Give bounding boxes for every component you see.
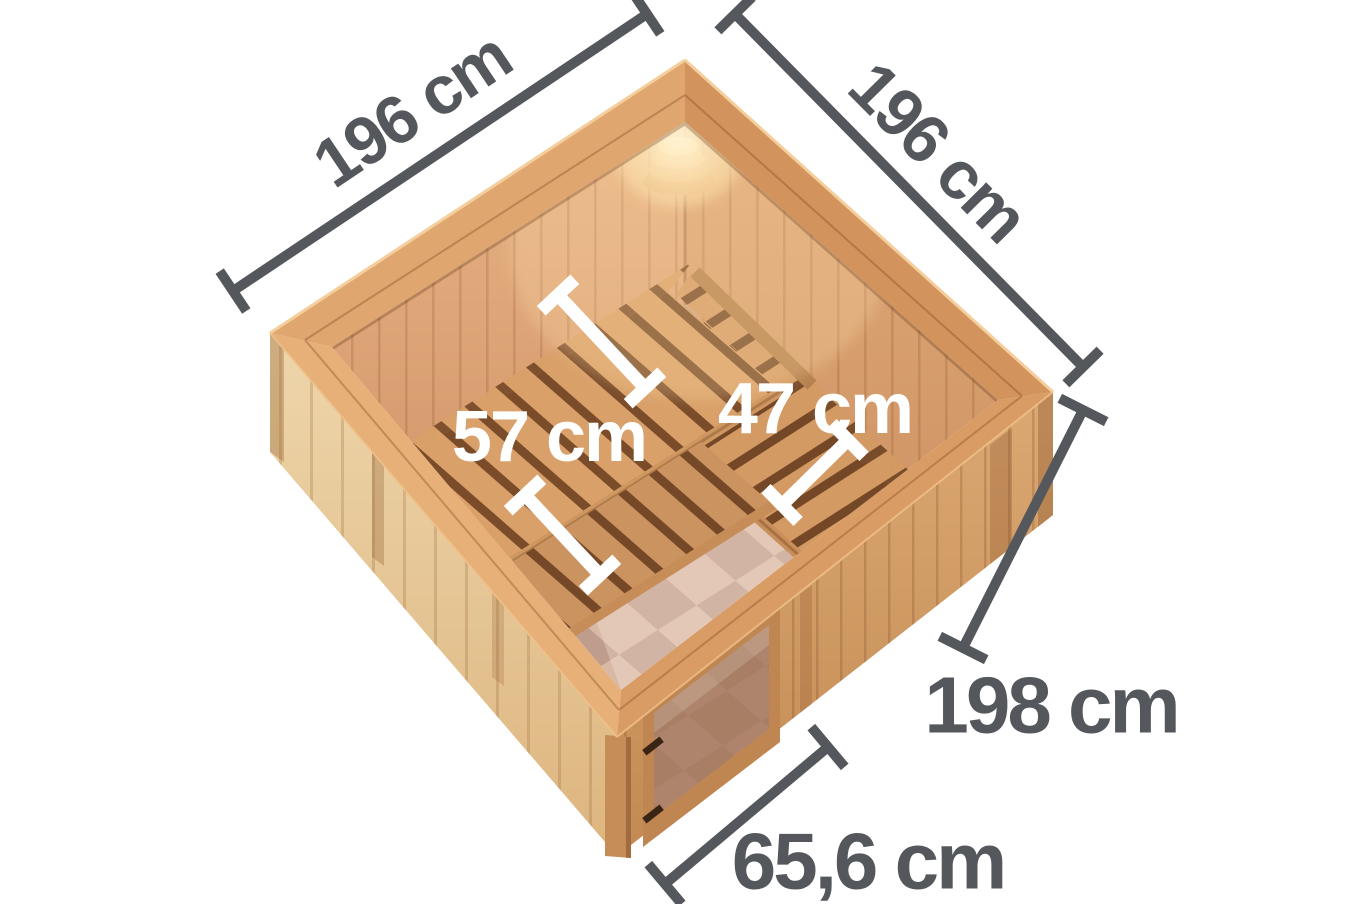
door-width-label: 65,6 cm: [732, 817, 1005, 904]
bench-depth-side-label: 47 cm: [718, 369, 912, 449]
outer-height-label: 198 cm: [924, 661, 1177, 750]
bench-depth-main-label: 57 cm: [452, 397, 646, 477]
sauna-illustration: 196 cm 196 cm 198 cm 65,6 cm 57 cm 47 cm: [0, 0, 1359, 904]
sauna-dimension-diagram: 196 cm 196 cm 198 cm 65,6 cm 57 cm 47 cm: [0, 0, 1359, 904]
